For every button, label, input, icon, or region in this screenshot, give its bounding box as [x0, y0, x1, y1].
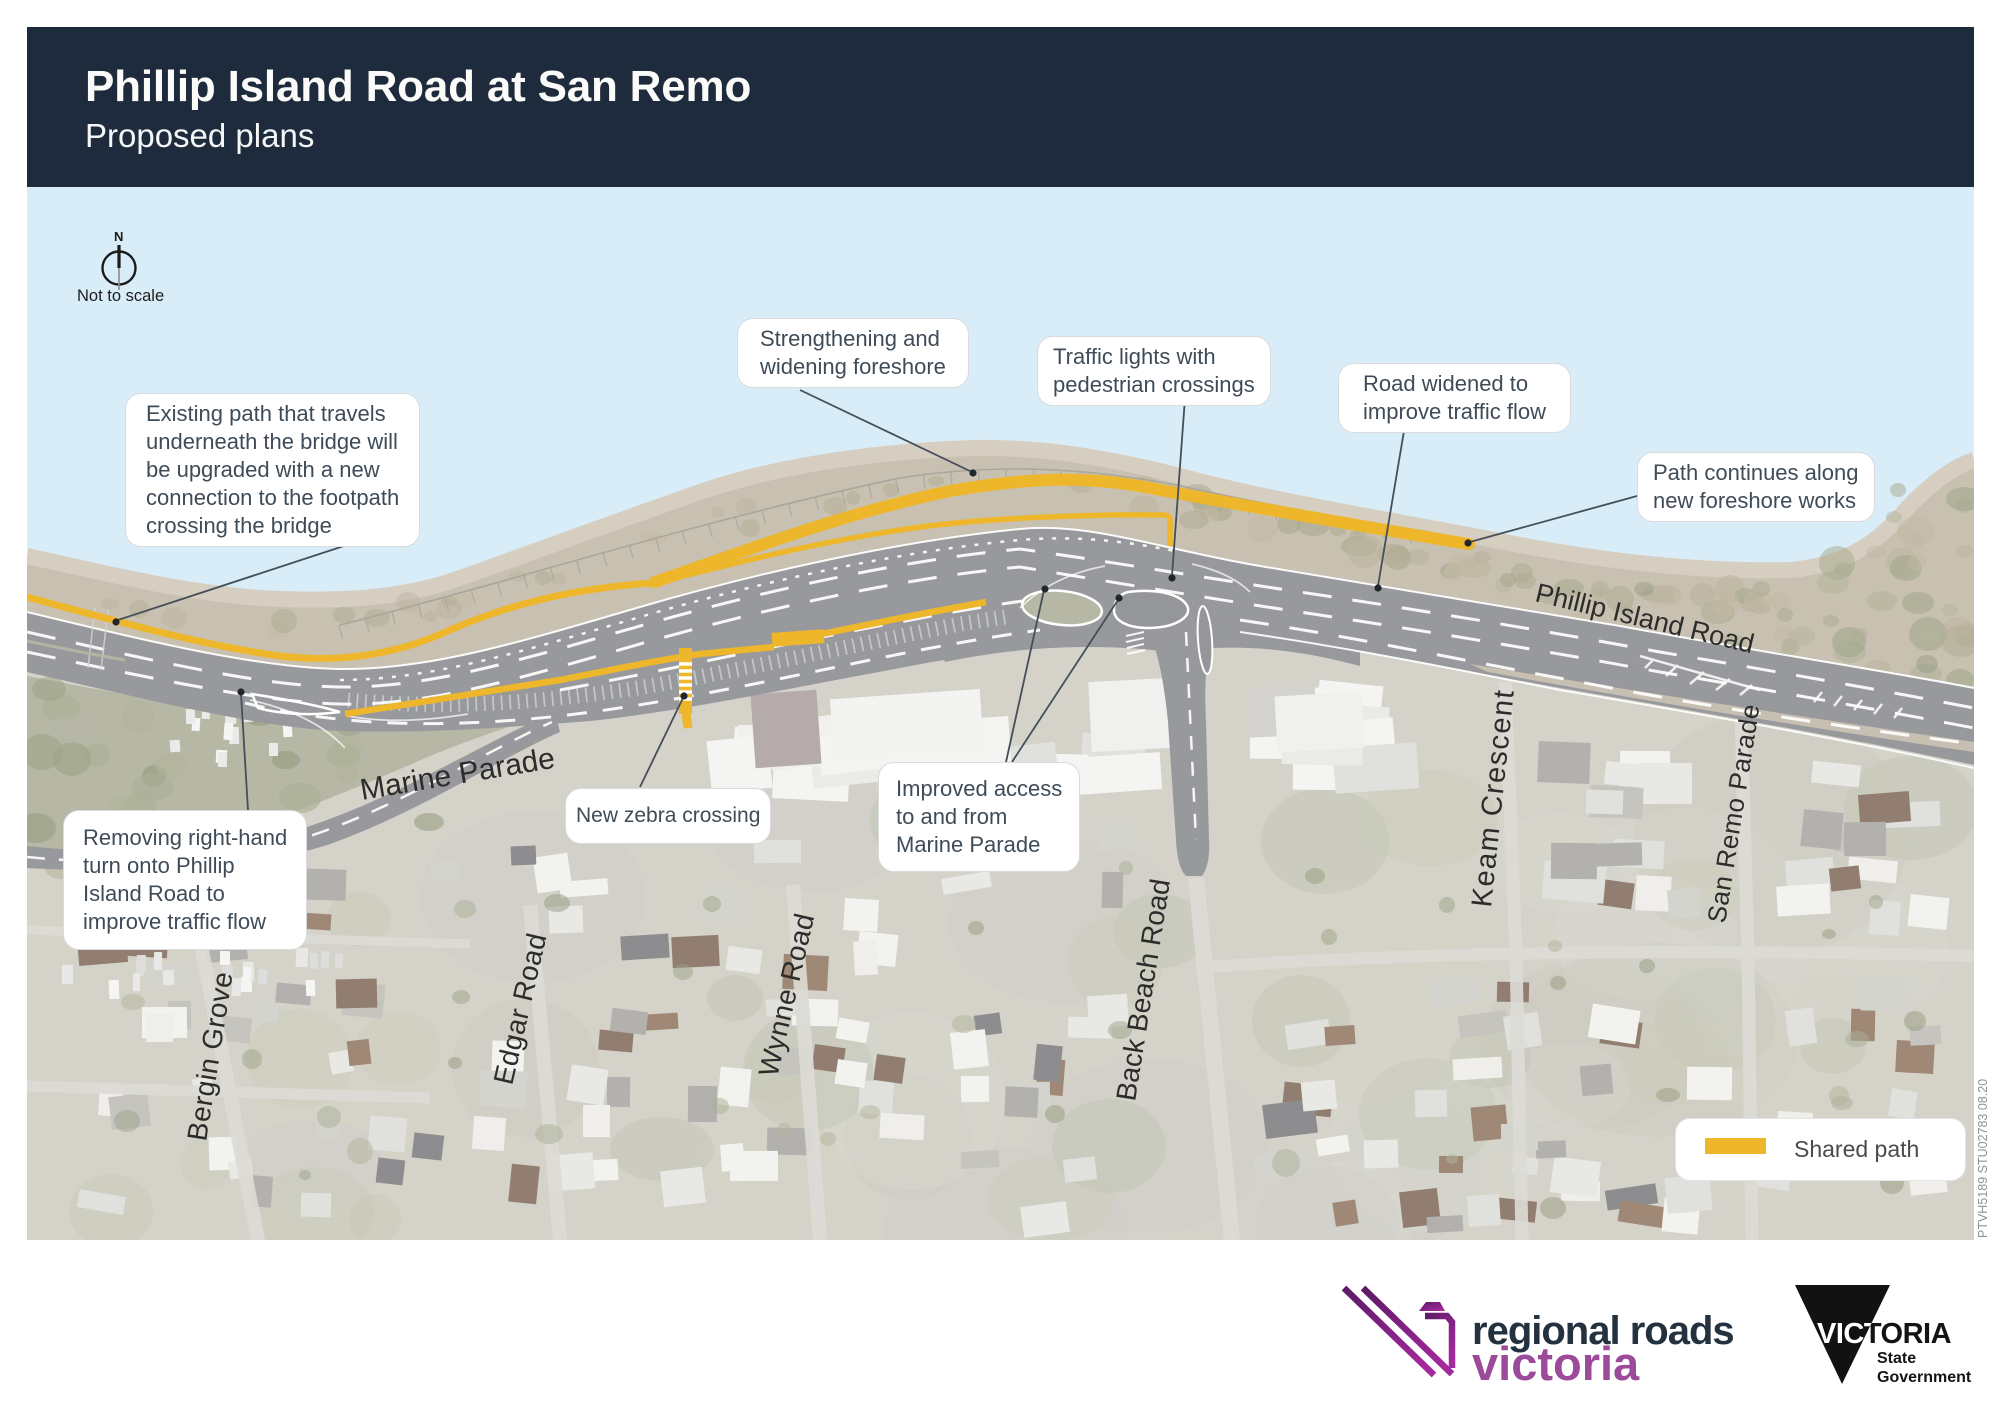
svg-text:Government: Government: [1877, 1369, 1972, 1386]
svg-text:State: State: [1877, 1350, 1916, 1367]
svg-text:N: N: [114, 229, 123, 244]
